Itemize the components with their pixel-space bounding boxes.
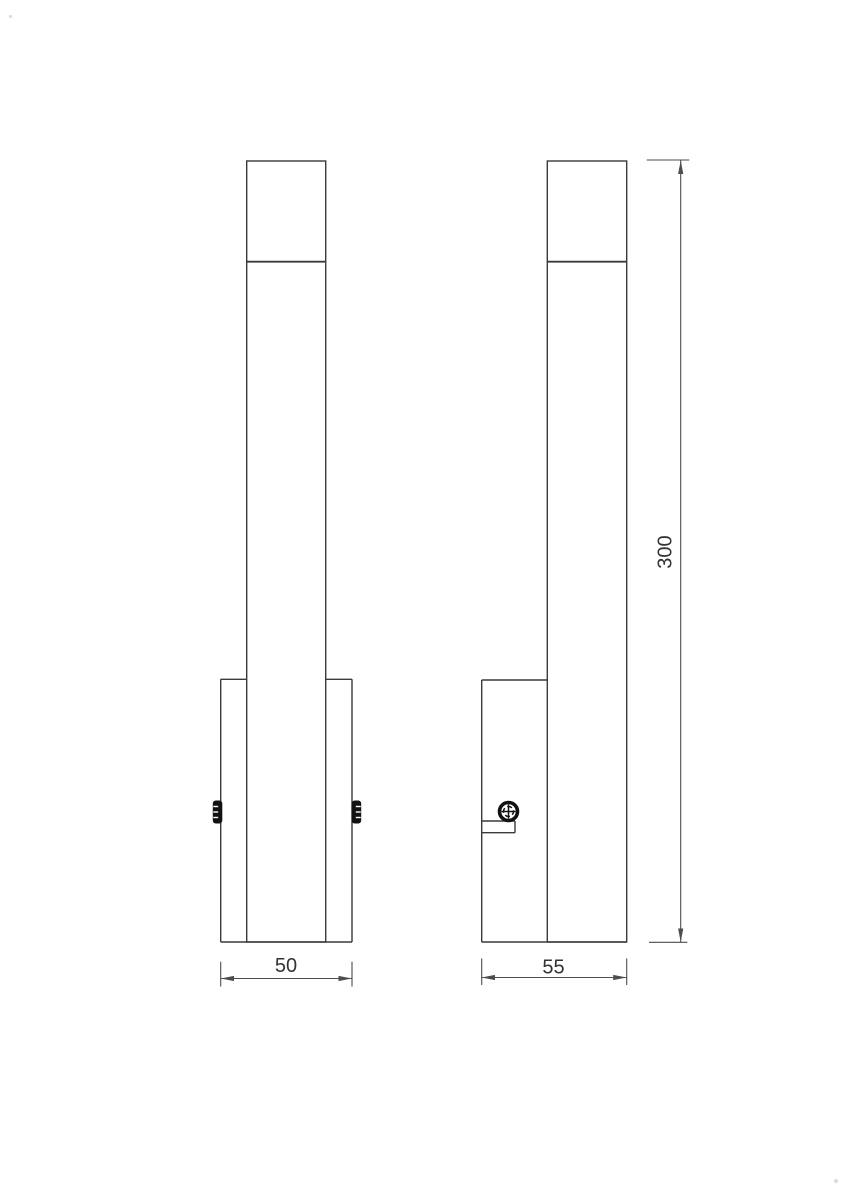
dim-55-label: 55 <box>542 957 564 979</box>
dimension-front-width: 50 <box>221 955 352 987</box>
side-clip-screw-left <box>213 801 223 824</box>
dimension-overall-height: 300 <box>647 160 690 942</box>
scan-speck-bottom-right <box>834 1179 838 1183</box>
dim-300-arrow-up-icon <box>678 161 683 175</box>
front-view-column-outline <box>247 161 326 942</box>
front-view <box>213 161 361 942</box>
lamp-dimension-drawing: 50 55 300 <box>0 0 849 1200</box>
dim-50-arrow-right-icon <box>339 976 353 981</box>
dim-300-label: 300 <box>655 535 677 568</box>
technical-drawing-page: 50 55 300 <box>0 0 849 1200</box>
dimension-side-depth: 55 <box>482 957 627 986</box>
side-view <box>482 161 627 942</box>
dim-300-arrow-down-icon <box>678 929 683 943</box>
dim-55-arrow-left-icon <box>482 975 495 980</box>
clamp-bracket <box>482 821 515 833</box>
side-view-column-outline <box>547 161 626 942</box>
dim-55-arrow-right-icon <box>613 975 627 980</box>
dim-50-arrow-left-icon <box>221 976 234 981</box>
phillips-screw-icon <box>500 803 518 821</box>
side-clip-screw-right <box>352 801 362 824</box>
dim-50-label: 50 <box>275 955 297 977</box>
scan-speck-top-left <box>9 15 12 18</box>
